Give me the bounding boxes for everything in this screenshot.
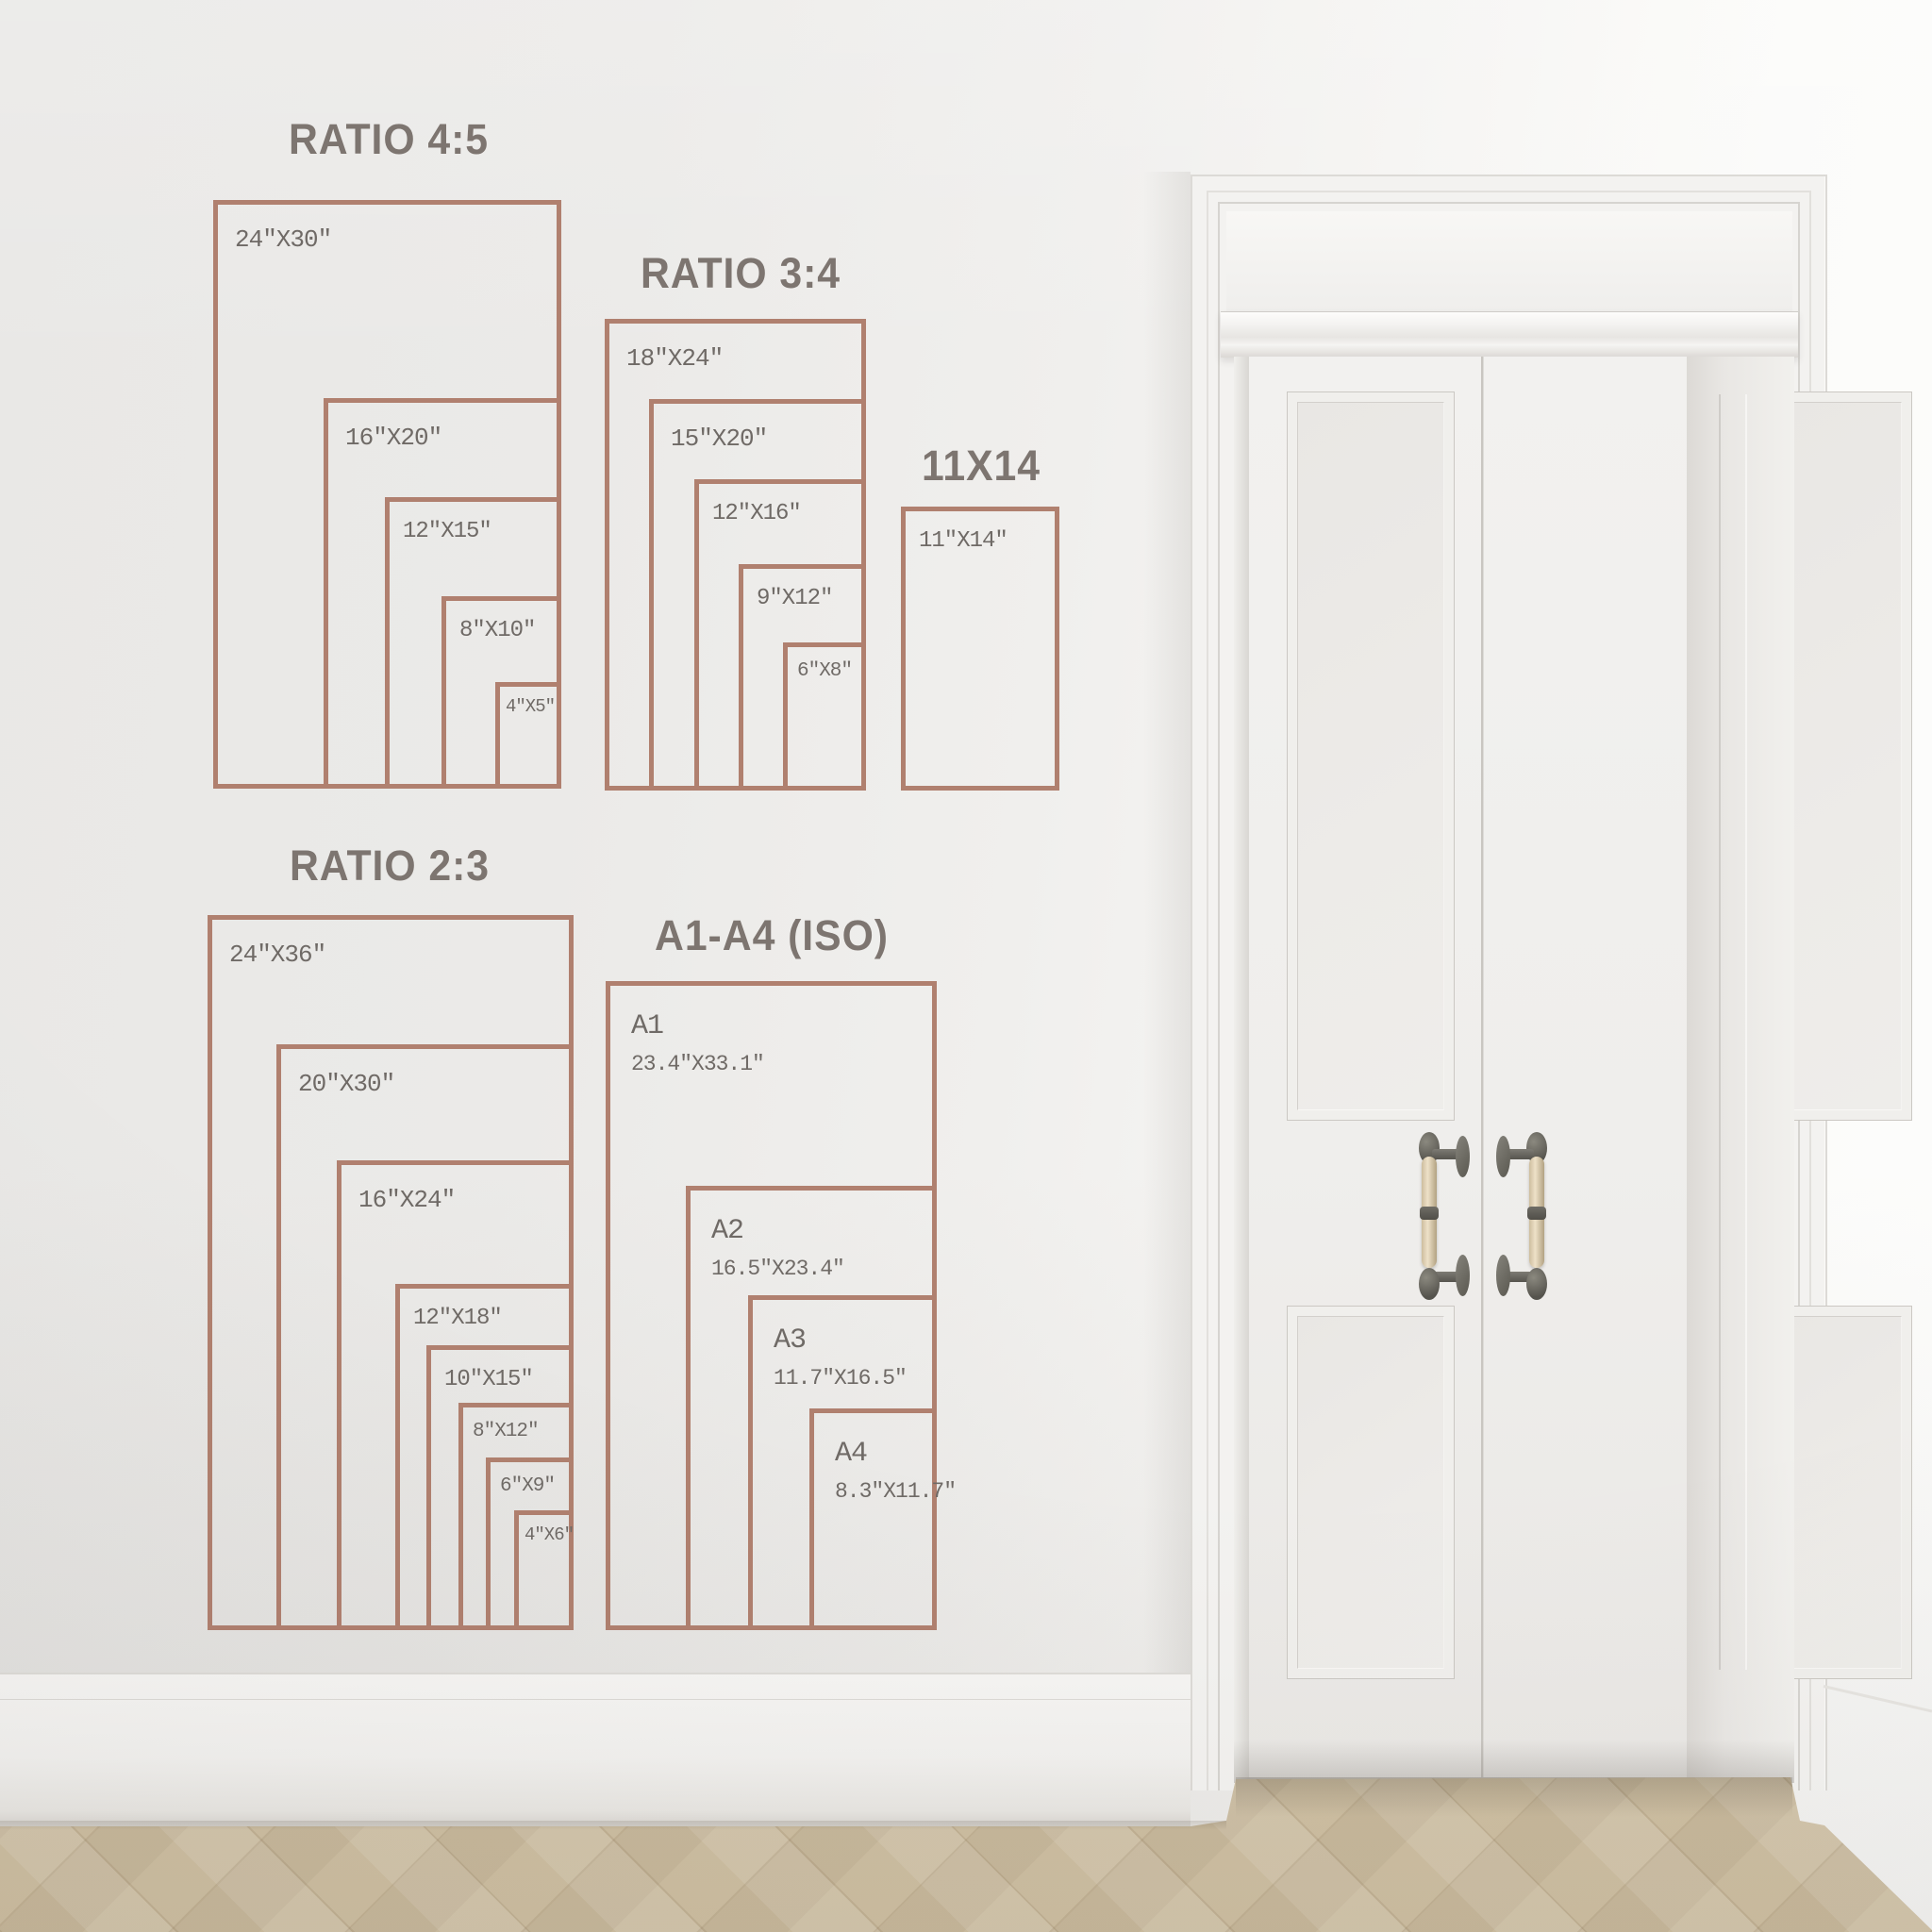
scene: RATIO 4:524"X30"16"X20"12"X15"8"X10"4"X5… — [0, 0, 1932, 1932]
iso-size-name: A1 — [631, 1010, 663, 1042]
group-title-ratio-2-3: RATIO 2:3 — [290, 841, 490, 891]
iso-size-name: A2 — [711, 1215, 743, 1247]
size-rect-11x14: 11"X14" — [901, 507, 1059, 791]
group-title-ratio-4-5: RATIO 4:5 — [289, 115, 489, 164]
size-label: 15"X20" — [671, 425, 767, 453]
print-size-chart: RATIO 4:524"X30"16"X20"12"X15"8"X10"4"X5… — [0, 0, 1932, 1932]
size-label: 12"X18" — [413, 1306, 502, 1331]
group-title-size-11x14: 11X14 — [922, 441, 1041, 491]
size-label: 24"X30" — [235, 225, 331, 254]
size-label: 4"X6" — [525, 1524, 574, 1545]
size-label: 4"X5" — [506, 696, 555, 717]
size-label: 24"X36" — [229, 941, 325, 969]
size-label: 20"X30" — [298, 1070, 394, 1098]
size-rect-4x5: 4"X5" — [495, 682, 561, 789]
size-label: 10"X15" — [444, 1367, 533, 1392]
size-label: 16"X24" — [358, 1186, 455, 1214]
doorway-floor-shadow — [1236, 1777, 1792, 1817]
iso-size-dimensions: 11.7"X16.5" — [774, 1366, 907, 1391]
size-label: 12"X16" — [712, 501, 801, 526]
iso-size-name: A3 — [774, 1324, 806, 1357]
size-label: 6"X9" — [500, 1475, 555, 1497]
group-title-iso-a1-a4: A1-A4 (ISO) — [655, 911, 889, 960]
iso-size-dimensions: 8.3"X11.7" — [835, 1479, 956, 1504]
iso-size-dimensions: 16.5"X23.4" — [711, 1257, 844, 1281]
size-rect-4x6: 4"X6" — [514, 1510, 574, 1630]
size-label: 8"X10" — [459, 618, 535, 643]
size-label: 9"X12" — [757, 586, 832, 611]
size-rect-6x8: 6"X8" — [783, 642, 866, 791]
size-label: 16"X20" — [345, 424, 441, 452]
iso-size-dimensions: 23.4"X33.1" — [631, 1052, 764, 1076]
size-label: 12"X15" — [403, 519, 491, 544]
size-label: 11"X14" — [919, 528, 1008, 554]
size-rect-a4: A48.3"X11.7" — [809, 1408, 937, 1630]
size-label: 6"X8" — [797, 660, 852, 682]
group-title-ratio-3-4: RATIO 3:4 — [641, 249, 841, 298]
iso-size-name: A4 — [835, 1438, 867, 1470]
size-label: 8"X12" — [473, 1421, 539, 1442]
size-label: 18"X24" — [626, 344, 723, 373]
wall-floor-contact-shadow — [0, 1821, 1226, 1830]
